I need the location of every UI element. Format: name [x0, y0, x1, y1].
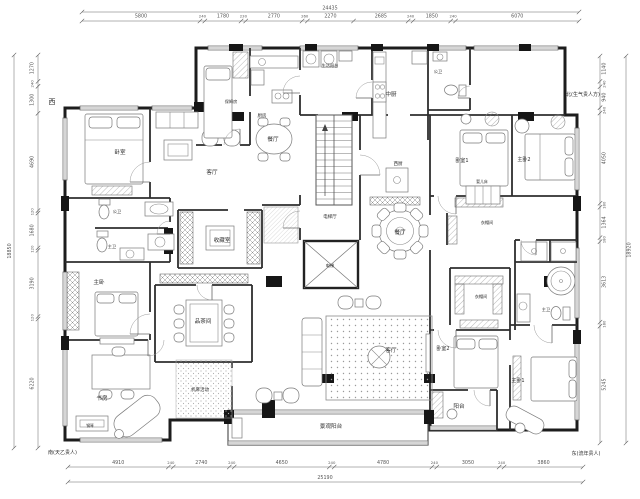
dim-value: 4050: [602, 152, 608, 164]
dim-value: 240: [199, 14, 207, 19]
dim-value: 3613: [602, 276, 608, 288]
room-label: 西厨: [394, 161, 403, 167]
room-label: 公卫: [434, 69, 442, 74]
door-swing-arc: [360, 155, 380, 175]
column: [573, 196, 581, 211]
room-label: 餐厅: [267, 135, 279, 143]
room-label: 电梯: [326, 262, 334, 269]
room-label: 书房: [96, 394, 108, 402]
door-swing-arc: [197, 285, 212, 300]
dim-value: 1300: [30, 94, 36, 106]
dim-value: 2770: [268, 14, 280, 20]
south-annotation: 南(天乙贵人): [48, 449, 77, 456]
room-label: 卧室1: [455, 157, 468, 164]
dim-value: 2270: [324, 14, 336, 20]
dim-value: 1780: [217, 14, 229, 20]
cabinet: [247, 212, 260, 264]
room-label: 景观阳台: [320, 422, 343, 430]
room-label: 品茶间: [195, 317, 212, 325]
dim-value: 230: [240, 14, 248, 19]
door-swing-arc: [534, 325, 552, 343]
column: [573, 330, 581, 344]
column: [61, 336, 69, 350]
dim-value: 3860: [537, 460, 549, 466]
dim-value: 4650: [276, 460, 288, 466]
cabinet: [180, 212, 193, 264]
room-label: 婴儿床: [476, 179, 488, 184]
room-label: 卧室2: [436, 345, 449, 352]
bathroom-fixtures: [97, 199, 174, 260]
bed: [460, 112, 508, 186]
dim-value: 940: [602, 93, 608, 102]
column: [61, 196, 69, 211]
room-label: 客厅: [385, 346, 397, 354]
cabinet: [160, 274, 248, 283]
chaise: [504, 404, 547, 437]
dim-value: 240: [328, 460, 336, 465]
room-label: 衣帽间: [481, 219, 494, 226]
cabinet: [455, 276, 503, 284]
wok-kitchen-counter: [373, 51, 427, 138]
dim-value: 240: [602, 106, 607, 114]
dim-value: 240: [602, 80, 607, 88]
dim-total: 18920: [627, 242, 633, 257]
dim-value: 6220: [30, 377, 36, 389]
dim-value: 260: [301, 14, 309, 19]
room-label: 餐厅: [394, 228, 406, 236]
room-label: 公卫: [113, 209, 121, 214]
door-swing-arc: [438, 196, 456, 214]
column: [266, 276, 282, 287]
dim-value: 2685: [375, 14, 387, 20]
grand-piano: [76, 391, 164, 441]
toilet: [433, 52, 466, 96]
cabinet: [92, 186, 132, 195]
dim-value: 240: [228, 460, 236, 465]
dim-value: 3050: [462, 460, 474, 466]
room-label: 保姆房: [225, 98, 238, 105]
room-label: 电梯厅: [323, 213, 337, 220]
dim-value: 4690: [30, 156, 36, 168]
dim-value: 1270: [30, 62, 36, 74]
dim-value: 180: [602, 320, 607, 328]
dim-value: 240: [498, 460, 506, 465]
room-label: 收藏室: [214, 236, 231, 244]
dim-value: 1680: [30, 224, 36, 236]
dim-value: 5800: [135, 14, 147, 20]
door-swing-arc: [356, 82, 372, 98]
dim-value: 180: [602, 201, 607, 209]
room-label: 钢琴: [86, 423, 94, 428]
dim-total: 18850: [7, 243, 13, 258]
cabinet: [493, 284, 502, 314]
floor-plan-svg: 5800240178023027702602270268524018502406…: [0, 0, 640, 499]
study-desk: [92, 347, 150, 399]
room-label: 主卧2: [517, 156, 530, 163]
room-label: 生活阳台: [322, 62, 339, 69]
dim-value: 240: [30, 80, 35, 88]
dim-value: 240: [449, 14, 457, 19]
bed: [515, 115, 575, 180]
dim-value: 120: [30, 314, 35, 322]
dim-value: 120: [30, 245, 35, 253]
kitchen-counter: [250, 56, 298, 103]
floor-plan-canvas: 5800240178023027702602270268524018502406…: [0, 0, 640, 499]
cabinet: [67, 272, 79, 330]
room-label: 主卫: [542, 306, 550, 312]
room-label: 衣帽间: [475, 293, 488, 300]
compass-west-label: 西: [49, 98, 56, 106]
dim-value: 240: [407, 14, 415, 19]
room-label: 中厨: [385, 90, 397, 98]
room-label: 主卧1: [511, 377, 524, 384]
dim-value: 5245: [602, 378, 608, 390]
dim-value: 1850: [426, 14, 438, 20]
column: [371, 44, 383, 51]
dim-value: 4780: [377, 460, 389, 466]
bed: [95, 292, 138, 344]
dim-value: 2740: [195, 460, 207, 466]
cabinet: [460, 320, 498, 328]
column: [305, 44, 317, 51]
room-label: 机麻活动: [191, 386, 209, 393]
column: [229, 44, 243, 51]
room-label: 厨房: [258, 112, 267, 119]
staircase: [316, 115, 352, 205]
dim-value: 120: [30, 208, 35, 216]
cabinet: [233, 52, 248, 78]
dim-value: 4910: [112, 460, 124, 466]
dim-total: 24435: [322, 6, 337, 12]
door-swing-arc: [474, 390, 490, 406]
dim-total: 25190: [317, 475, 332, 481]
kitchen-island: [386, 168, 408, 192]
column: [427, 44, 439, 51]
north-annotation: 北(生气贵人方): [566, 91, 600, 98]
room-label: 卧室: [114, 148, 126, 156]
dim-value: 240: [167, 460, 175, 465]
room-label: 主卧: [93, 278, 105, 286]
living-room-set: [256, 296, 432, 403]
bed: [454, 336, 498, 388]
door-swing-arc: [148, 340, 164, 356]
dim-value: 240: [431, 460, 439, 465]
dim-value: 180: [602, 235, 607, 243]
room-label: 阳台: [453, 402, 465, 410]
cabinet: [448, 216, 457, 244]
column: [519, 44, 531, 51]
cabinet: [455, 284, 464, 314]
room-label: 客厅: [206, 168, 218, 176]
east-annotation: 东(流年贵人): [572, 450, 601, 457]
baby-crib: [466, 186, 500, 204]
bed: [85, 114, 143, 184]
dim-value: 1140: [602, 63, 608, 75]
dim-value: 3190: [30, 277, 36, 289]
room-label: 主卫: [108, 243, 116, 249]
dim-value: 6070: [511, 14, 523, 20]
dim-value: 1364: [602, 216, 608, 228]
column: [424, 410, 434, 424]
